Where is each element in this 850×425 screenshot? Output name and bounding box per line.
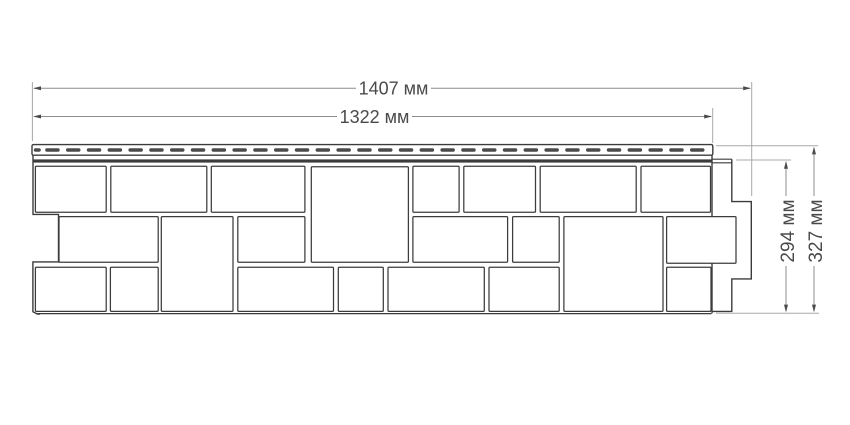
svg-text:294 мм: 294 мм	[778, 199, 799, 262]
svg-text:1407 мм: 1407 мм	[359, 79, 429, 99]
svg-text:327 мм: 327 мм	[806, 199, 827, 262]
svg-text:1322 мм: 1322 мм	[340, 107, 410, 127]
